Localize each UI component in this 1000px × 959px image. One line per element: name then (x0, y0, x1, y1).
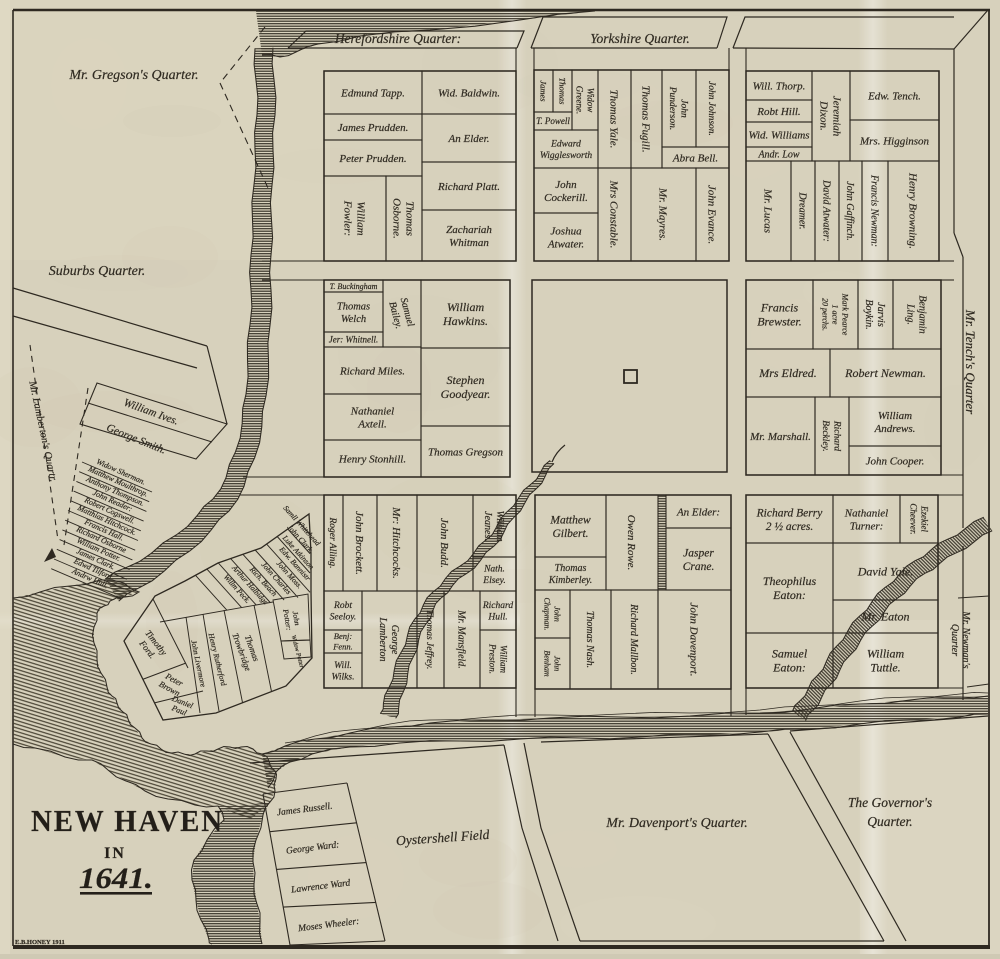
svg-text:Mrs Constable.: Mrs Constable. (608, 180, 620, 249)
svg-text:An Elder:: An Elder: (676, 506, 720, 518)
svg-text:WilliamJeanes.: WilliamJeanes. (482, 510, 505, 541)
svg-text:David Yale.: David Yale. (857, 565, 914, 579)
svg-text:Will.Wilks.: Will.Wilks. (332, 661, 355, 683)
svg-text:Richard Berry2 ½ acres.: Richard Berry2 ½ acres. (756, 507, 824, 533)
svg-text:WidowGreene.: WidowGreene. (574, 86, 595, 114)
svg-text:ThomasWelch: ThomasWelch (337, 301, 370, 325)
svg-text:John Cooper.: John Cooper. (866, 455, 925, 467)
svg-text:Thomas Fugill.: Thomas Fugill. (640, 85, 652, 152)
svg-text:Nath.Elsey.: Nath.Elsey. (482, 565, 505, 587)
svg-text:Peter Prudden.: Peter Prudden. (338, 153, 406, 165)
svg-text:WilliamAndrews.: WilliamAndrews. (874, 410, 916, 435)
svg-text:Wid. Williams: Wid. Williams (748, 129, 809, 141)
svg-text:Richard Miles.: Richard Miles. (339, 365, 405, 377)
svg-text:Mr. Mayres.: Mr. Mayres. (657, 187, 669, 241)
svg-text:Richard Platt.: Richard Platt. (437, 181, 500, 193)
svg-text:Dreamer.: Dreamer. (797, 191, 808, 229)
svg-text:T. Powell: T. Powell (536, 116, 570, 126)
svg-text:Mr. Eaton: Mr. Eaton (861, 610, 910, 624)
svg-text:Mr. Lucas: Mr. Lucas (762, 188, 774, 233)
svg-text:Wid. Baldwin.: Wid. Baldwin. (438, 87, 500, 99)
svg-text:1641.: 1641. (79, 862, 153, 895)
svg-text:John Brockett.: John Brockett. (353, 511, 365, 575)
svg-text:John Budd.: John Budd. (438, 518, 450, 568)
svg-text:StephenGoodyear.: StephenGoodyear. (441, 373, 491, 401)
svg-text:Mr: Hitchcocks.: Mr: Hitchcocks. (390, 506, 402, 578)
svg-text:Benj:Fenn.: Benj:Fenn. (332, 631, 353, 652)
svg-text:E.B.HONEY 1911: E.B.HONEY 1911 (15, 939, 65, 946)
svg-text:Mr. Marshall.: Mr. Marshall. (749, 431, 811, 443)
svg-text:RichardBeckley.: RichardBeckley. (820, 420, 842, 452)
svg-text:Abra Bell.: Abra Bell. (672, 152, 718, 164)
svg-text:ZachariahWhitman: ZachariahWhitman (446, 224, 492, 249)
svg-text:WilliamPreston.: WilliamPreston. (487, 643, 508, 674)
svg-text:Roger Alling.: Roger Alling. (327, 516, 337, 568)
svg-text:Thomas Gregson: Thomas Gregson (428, 446, 504, 458)
svg-text:JeremiahDixon.: JeremiahDixon. (818, 96, 843, 137)
svg-text:JarvisBoykin.: JarvisBoykin. (863, 299, 886, 329)
svg-text:WilliamFowler:: WilliamFowler: (342, 200, 367, 236)
svg-text:An Elder.: An Elder. (448, 133, 490, 145)
svg-text:Thomas Yale.: Thomas Yale. (608, 90, 620, 149)
svg-text:John Johnson.: John Johnson. (706, 81, 716, 136)
svg-text:Mrs Eldred.: Mrs Eldred. (758, 366, 817, 380)
svg-text:Will. Thorp.: Will. Thorp. (753, 80, 806, 92)
svg-text:Edmund Tapp.: Edmund Tapp. (340, 87, 405, 99)
svg-text:David Atwater:: David Atwater: (821, 179, 832, 242)
svg-text:MatthewGilbert.: MatthewGilbert. (549, 514, 591, 540)
svg-text:SamuelEaton:: SamuelEaton: (772, 647, 808, 675)
svg-text:Robert Newman.: Robert Newman. (844, 366, 926, 380)
svg-text:Jer: Whitnell.: Jer: Whitnell. (329, 335, 378, 345)
svg-text:EzekielCheever.: EzekielCheever. (908, 503, 929, 534)
svg-text:Richard Mallbon.: Richard Mallbon. (628, 603, 639, 675)
svg-text:Edw. Tench.: Edw. Tench. (867, 90, 921, 102)
svg-text:Francis Newman:: Francis Newman: (869, 174, 880, 247)
svg-text:Henry Stonhill.: Henry Stonhill. (338, 453, 406, 465)
svg-text:IN: IN (104, 845, 126, 862)
svg-text:Mr. Gregson's Quarter.: Mr. Gregson's Quarter. (68, 68, 198, 83)
svg-text:JoshuaAtwater.: JoshuaAtwater. (547, 225, 584, 250)
svg-text:Mr. Davenport's Quarter.: Mr. Davenport's Quarter. (605, 816, 747, 831)
svg-text:ThomasOsborne.: ThomasOsborne. (391, 198, 416, 239)
svg-text:Henry Browning.: Henry Browning. (907, 172, 919, 249)
svg-text:Thomas Jeffrey.: Thomas Jeffrey. (424, 610, 435, 670)
svg-text:James Prudden.: James Prudden. (338, 122, 409, 134)
svg-text:Yorkshire Quarter.: Yorkshire Quarter. (590, 31, 690, 46)
svg-text:Thomas Nash.: Thomas Nash. (584, 611, 595, 668)
svg-text:Owen Rowe.: Owen Rowe. (625, 515, 637, 571)
svg-text:Robt Hill.: Robt Hill. (756, 106, 800, 118)
svg-text:Herefordshire Quarter:: Herefordshire Quarter: (334, 31, 461, 46)
svg-text:FrancisBrewster.: FrancisBrewster. (757, 301, 802, 329)
svg-text:Thomas: Thomas (558, 78, 568, 106)
svg-text:James: James (539, 80, 549, 102)
svg-text:John Evance.: John Evance. (706, 185, 718, 244)
svg-text:WilliamHawkins.: WilliamHawkins. (442, 300, 488, 328)
svg-text:NEW HAVEN: NEW HAVEN (31, 803, 224, 838)
svg-text:NathanielTurner:: NathanielTurner: (844, 507, 888, 532)
svg-text:Mr. Tench's Quarter: Mr. Tench's Quarter (963, 309, 978, 415)
svg-text:T. Buckingham: T. Buckingham (330, 282, 378, 291)
svg-text:Mrs. Higginson: Mrs. Higginson (859, 135, 930, 147)
svg-text:Suburbs Quarter.: Suburbs Quarter. (49, 264, 145, 279)
svg-text:Andr. Low: Andr. Low (757, 150, 799, 161)
svg-text:JasperCrane.: JasperCrane. (683, 547, 715, 573)
svg-text:ThomasKimberley.: ThomasKimberley. (548, 563, 593, 586)
svg-text:John Davenport.: John Davenport. (688, 603, 700, 677)
svg-text:John Gaffinch.: John Gaffinch. (844, 181, 855, 240)
svg-text:Mr. Mansfield.: Mr. Mansfield. (456, 609, 467, 669)
svg-text:WilliamTuttle.: WilliamTuttle. (867, 647, 905, 675)
